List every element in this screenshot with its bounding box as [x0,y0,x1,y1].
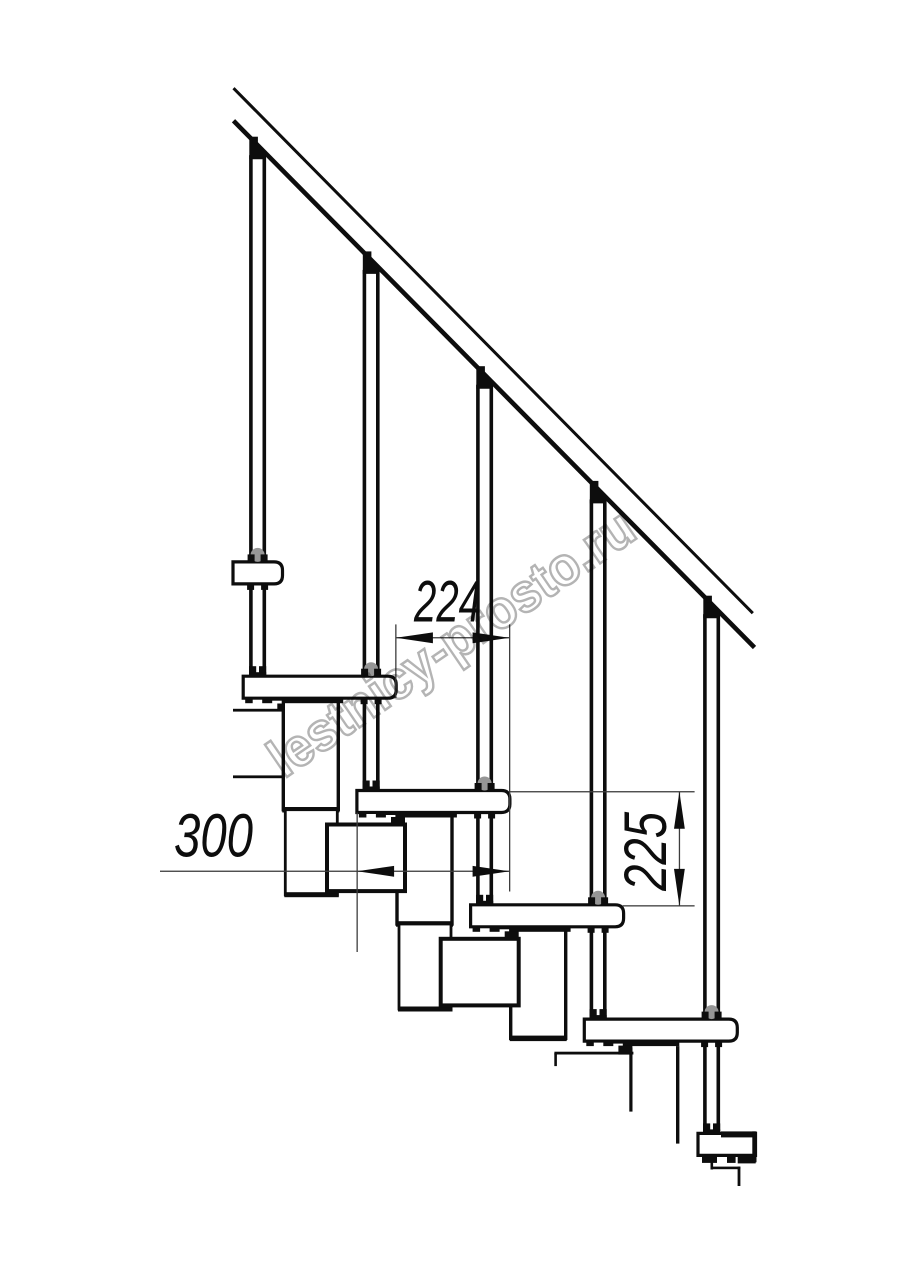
svg-text:300: 300 [174,802,253,870]
svg-text:225: 225 [612,811,679,891]
